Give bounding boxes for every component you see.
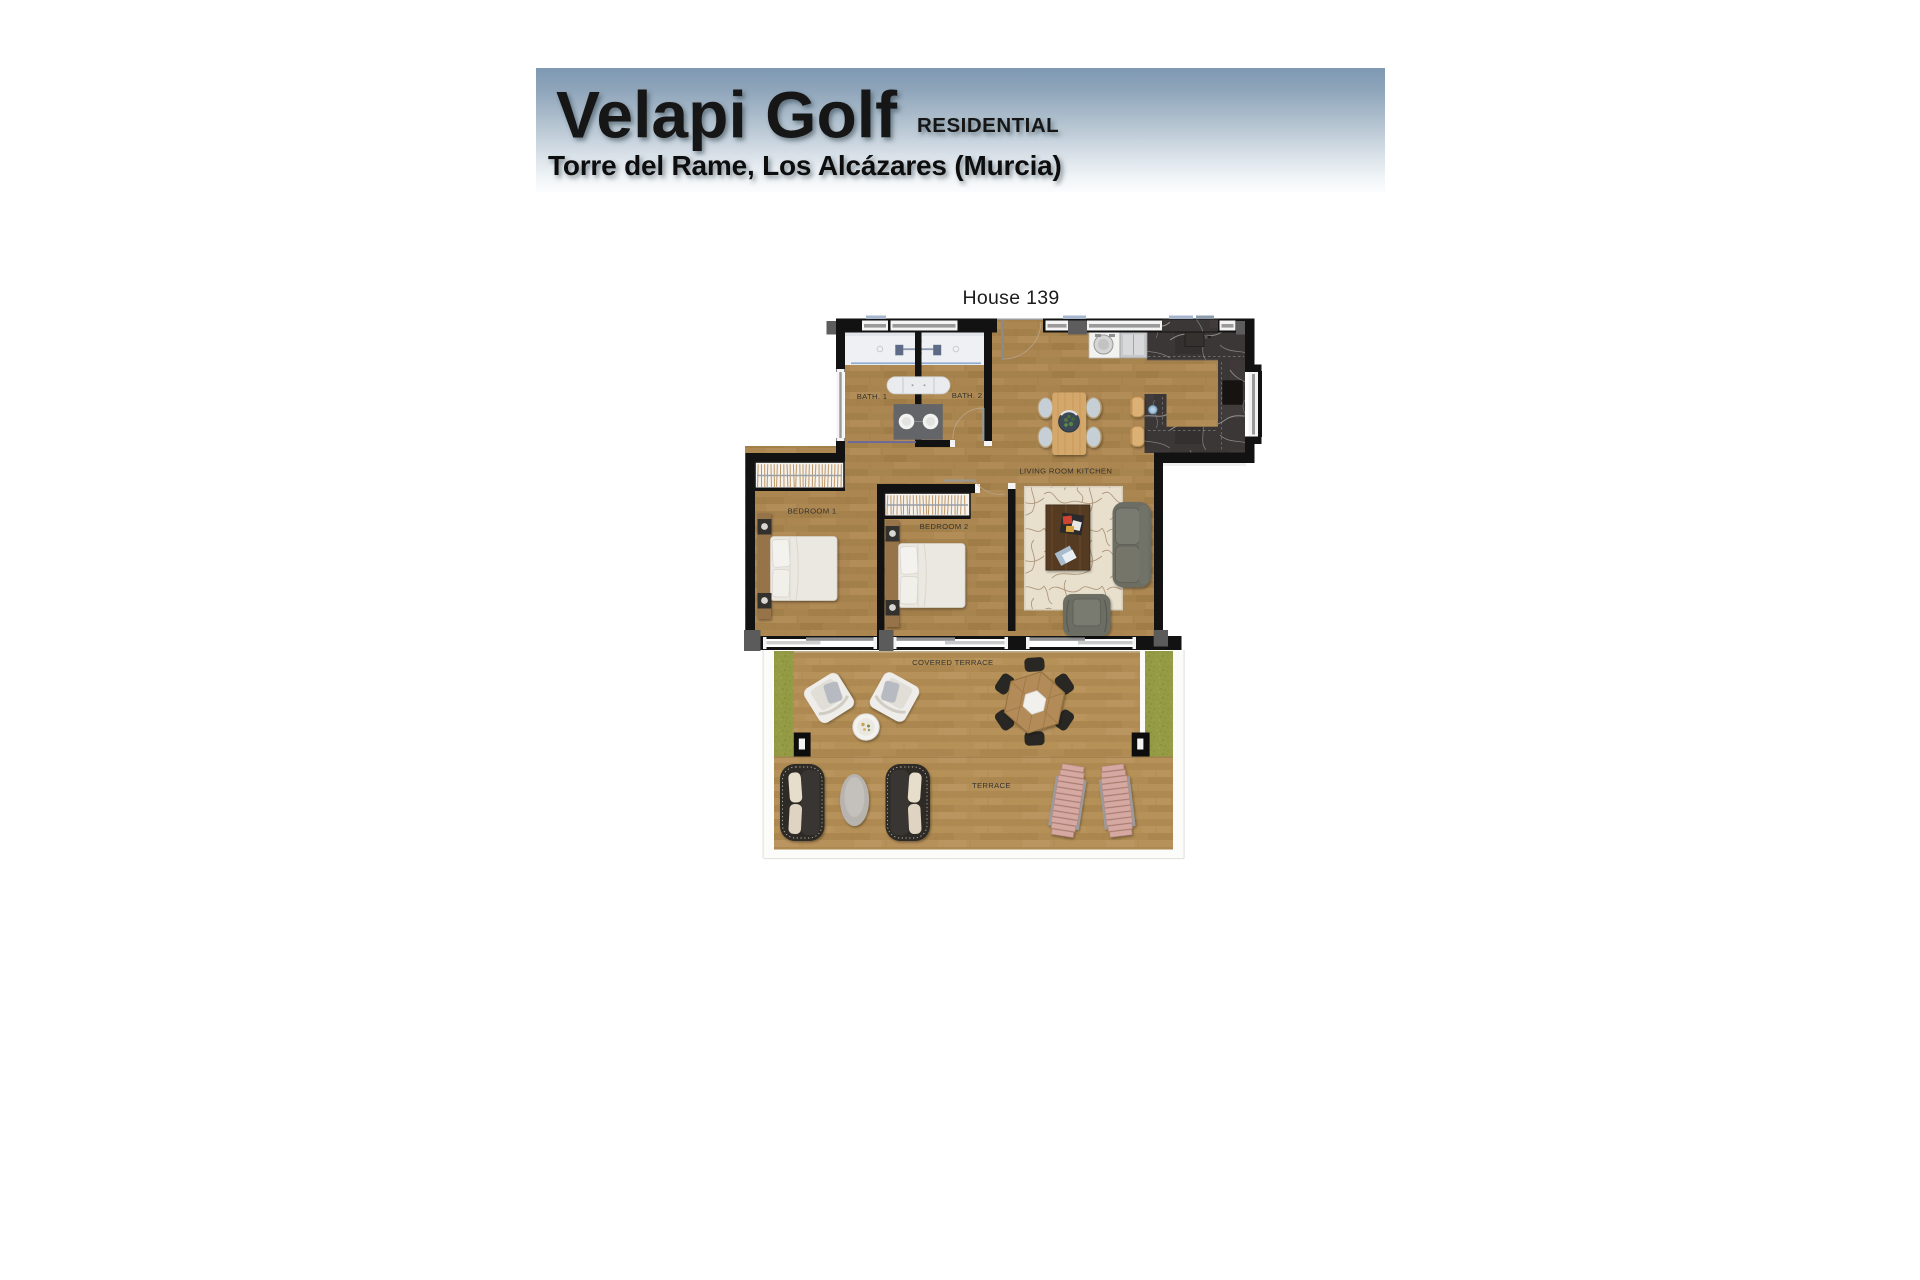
svg-text:BATH. 1: BATH. 1 [857,392,888,401]
svg-text:TERRACE: TERRACE [972,781,1011,790]
svg-text:LIVING ROOM KITCHEN: LIVING ROOM KITCHEN [1019,467,1112,476]
svg-text:BATH. 2: BATH. 2 [952,391,983,400]
svg-text:RESIDENTIAL: RESIDENTIAL [917,114,1059,137]
svg-text:BEDROOM 1: BEDROOM 1 [788,507,837,516]
svg-text:House 139: House 139 [962,287,1059,309]
svg-text:Velapi Golf: Velapi Golf [556,78,898,152]
svg-text:Torre del Rame, Los Alcázares: Torre del Rame, Los Alcázares (Murcia) [548,150,1062,181]
svg-text:COVERED TERRACE: COVERED TERRACE [912,658,993,667]
svg-text:BEDROOM 2: BEDROOM 2 [920,522,969,531]
